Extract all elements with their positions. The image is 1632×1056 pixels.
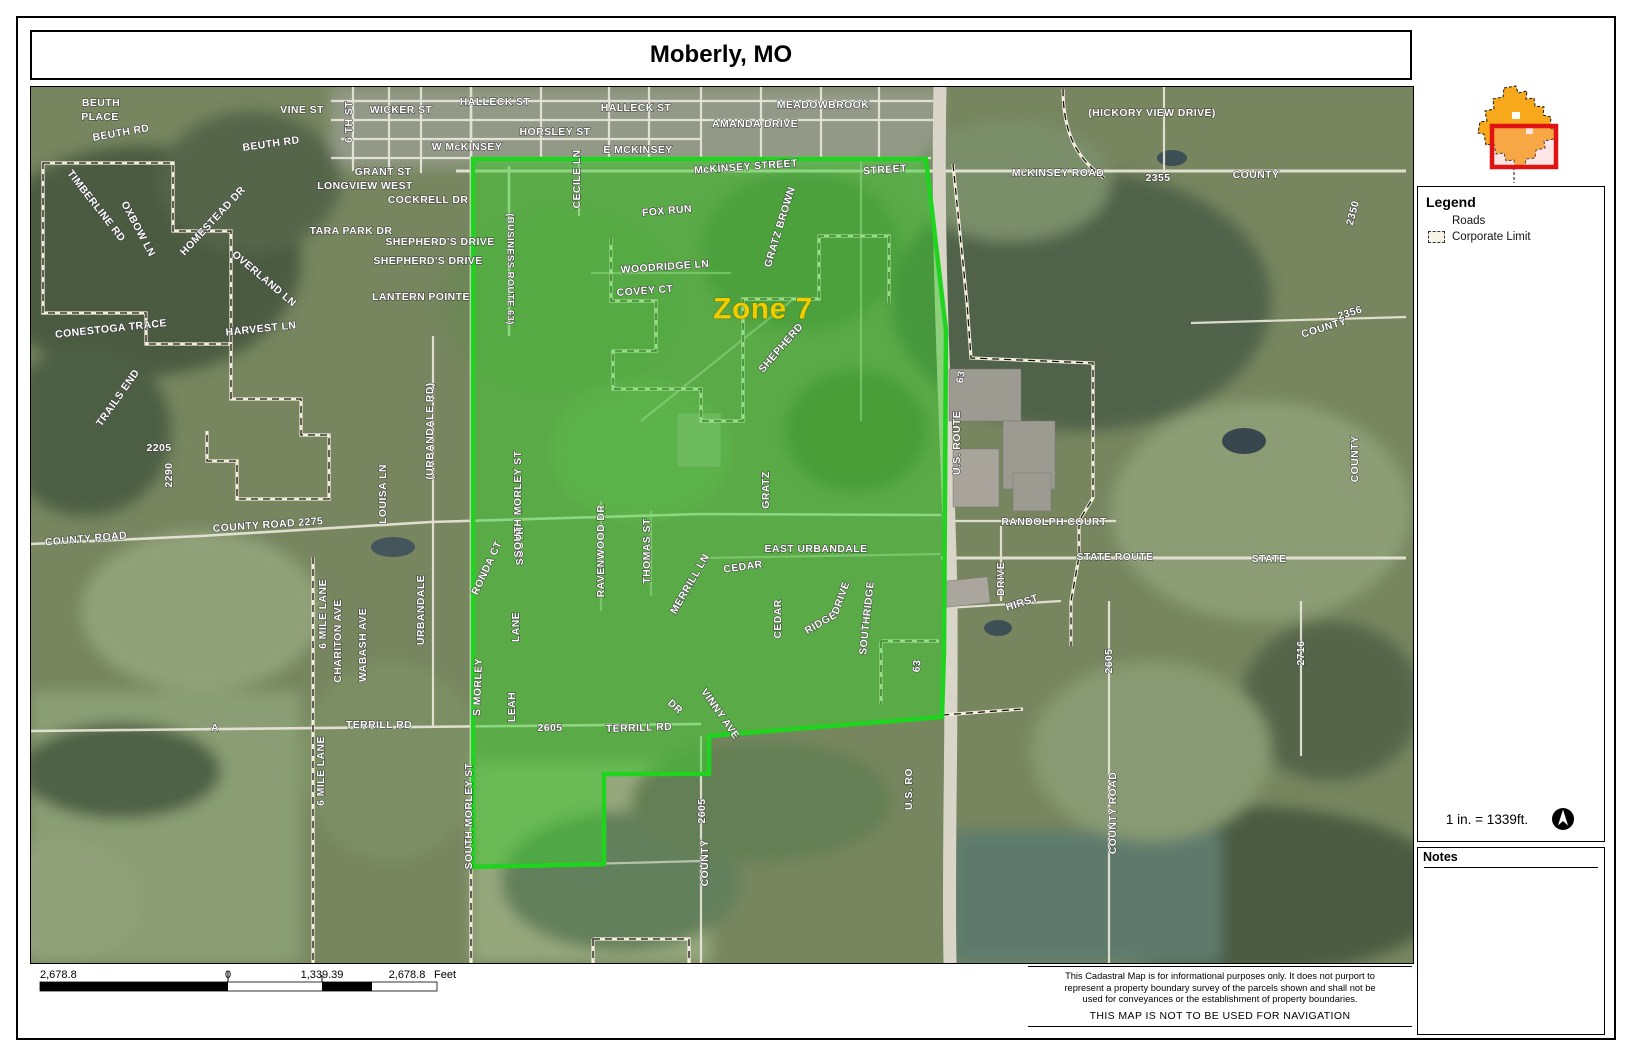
corporate-limit-symbol xyxy=(1428,231,1445,243)
disclaimer-line: This Cadastral Map is for informational … xyxy=(1028,971,1412,983)
disclaimer-line: represent a property boundary survey of … xyxy=(1028,983,1412,995)
street-label: 2716 xyxy=(1295,641,1307,666)
street-label: (BUSINESS ROUTE 63) xyxy=(505,213,516,325)
overview-inset-map xyxy=(1468,84,1572,186)
notes-divider xyxy=(1424,867,1598,868)
street-label: SHEPHERD'S DRIVE xyxy=(373,255,482,267)
street-label: COCKRELL DR xyxy=(388,194,469,206)
street-label: 2605 xyxy=(538,722,563,734)
street-label: COUNTY xyxy=(1349,436,1361,483)
street-label: HALLECK ST xyxy=(460,96,531,108)
legend-panel: Legend Roads Corporate Limit 1 in. = 133… xyxy=(1417,186,1605,842)
disclaimer-line: used for conveyances or the establishmen… xyxy=(1028,994,1412,1006)
street-label: W McKINSEY xyxy=(432,141,503,153)
street-label: LEAH xyxy=(506,692,518,722)
street-label: CHARITON AVE xyxy=(332,599,344,682)
scale-row: 1 in. = 1339ft. xyxy=(1418,806,1604,841)
street-label: CEDAR xyxy=(772,599,784,638)
street-label: 2605 xyxy=(1103,649,1115,674)
street-label: STATE xyxy=(1252,553,1287,565)
scale-text: 1 in. = 1339ft. xyxy=(1446,812,1528,827)
scalebar-left-label: 2,678.8 xyxy=(40,969,77,981)
street-label: LANE xyxy=(510,612,522,642)
inset-zone-highlight xyxy=(1492,126,1556,167)
page-title: Moberly, MO xyxy=(650,41,792,69)
legend-item-roads: Roads xyxy=(1418,213,1604,229)
street-label: 2355 xyxy=(1146,172,1171,184)
street-label: 6 MILE LANE xyxy=(315,736,327,806)
disclaimer-box: This Cadastral Map is for informational … xyxy=(1028,966,1412,1027)
street-label: COUNTY xyxy=(1233,169,1280,181)
street-label: E MCKINSEY xyxy=(603,144,672,156)
street-label: 63 xyxy=(910,659,923,672)
street-label: EAST URBANDALE xyxy=(764,543,867,555)
zone-7-label: Zone 7 xyxy=(713,293,813,326)
street-label: S MORLEY xyxy=(471,658,485,716)
street-label: 2205 xyxy=(147,442,172,454)
street-label: WICKER ST xyxy=(370,104,433,116)
street-label: TERRILL RD xyxy=(606,721,673,735)
street-label: U.S. ROUTE xyxy=(951,411,963,475)
street-label: SOUTH MORLEY ST xyxy=(463,762,475,869)
street-label: GRATZ xyxy=(760,471,772,509)
street-label: STATE ROUTE xyxy=(1077,551,1154,563)
notes-panel: Notes xyxy=(1417,847,1605,1035)
street-label: LANTERN POINTE xyxy=(372,291,470,303)
street-label: LONGVIEW WEST xyxy=(317,180,413,192)
street-label: SHEPHERD'S DRIVE xyxy=(385,236,494,248)
street-label: WABASH AVE xyxy=(357,608,369,682)
aerial-map: BEUTHPLACEBEUTH RDBEUTH RDVINE ST6 TH ST… xyxy=(31,87,1413,963)
street-label: 6 MILE LANE xyxy=(317,579,329,649)
street-label: (URBANDALE RD) xyxy=(424,382,436,479)
roads-symbol xyxy=(1428,215,1445,227)
street-label: THOMAS ST xyxy=(641,518,653,584)
street-label: 2605 xyxy=(696,799,708,824)
street-label: HALLECK ST xyxy=(601,102,672,114)
street-label: COUNTY ROAD xyxy=(1107,772,1119,854)
street-label: DRIVE xyxy=(995,562,1007,596)
legend-item-label: Corporate Limit xyxy=(1452,231,1531,243)
street-label: PLACE xyxy=(81,111,119,123)
north-arrow-icon xyxy=(1550,806,1576,832)
street-label: 2290 xyxy=(163,463,175,488)
street-label: (HICKORY VIEW DRIVE) xyxy=(1088,107,1216,119)
scale-bar: 2,678.8 0 1,339.39 2,678.8 Feet xyxy=(30,963,460,1008)
street-label: LOUISA LN xyxy=(377,464,389,524)
street-label: McKINSEY ROAD xyxy=(1012,167,1105,179)
street-label: COUNTY xyxy=(699,840,711,887)
street-label: SOUTH MORLEY ST xyxy=(512,450,524,557)
street-label: TERRILL RD xyxy=(346,719,412,731)
map-canvas: BEUTHPLACEBEUTH RDBEUTH RDVINE ST6 TH ST… xyxy=(30,86,1414,964)
street-label: GRANT ST xyxy=(355,166,412,178)
street-label: MEADOWBROOK xyxy=(777,99,869,111)
street-label: BEUTH xyxy=(82,97,120,109)
navigation-warning: THIS MAP IS NOT TO BE USED FOR NAVIGATIO… xyxy=(1028,1011,1412,1023)
street-label: 63 xyxy=(954,370,968,384)
street-label: U.S. RO xyxy=(903,768,915,810)
cadastral-map-page: Moberly, MO xyxy=(0,0,1632,1056)
street-label: AMANDA DRIVE xyxy=(712,118,798,130)
street-label: VINE ST xyxy=(280,104,324,116)
street-label: CECILE LN xyxy=(571,149,583,208)
street-label: RAVENWOOD DR xyxy=(595,505,607,598)
street-label: A xyxy=(211,722,219,734)
street-label: TARA PARK DR xyxy=(310,225,393,237)
map-title-bar: Moberly, MO xyxy=(30,30,1412,80)
legend-item-label: Roads xyxy=(1452,215,1485,227)
scalebar-right-label: 2,678.8 xyxy=(389,969,426,981)
legend-item-corporate-limit: Corporate Limit xyxy=(1418,229,1604,245)
street-label: RANDOLPH COURT xyxy=(1001,516,1107,528)
street-label: URBANDALE xyxy=(415,575,427,645)
legend-title: Legend xyxy=(1418,187,1604,213)
street-label: 6 TH ST xyxy=(343,101,355,143)
street-label: HORSLEY ST xyxy=(520,126,591,138)
notes-title: Notes xyxy=(1418,848,1604,865)
scalebar-unit-label: Feet xyxy=(434,969,456,981)
